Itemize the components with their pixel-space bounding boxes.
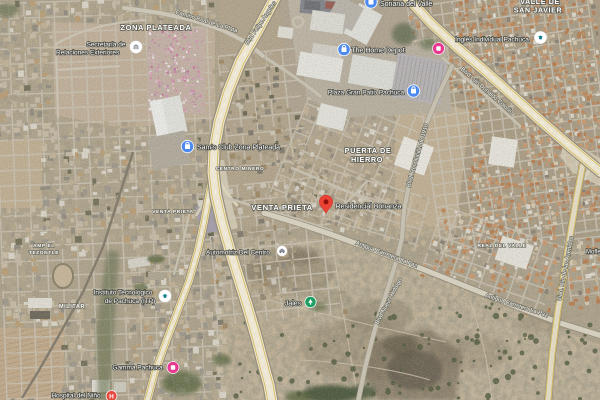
svg-text:VENTA PRIETA: VENTA PRIETA	[251, 203, 312, 212]
svg-text:H: H	[109, 393, 114, 400]
svg-text:Automotriz Del Centro: Automotriz Del Centro	[206, 250, 270, 257]
svg-text:Soriana del Valle: Soriana del Valle	[380, 1, 433, 8]
svg-text:Relaciones Exteriores: Relaciones Exteriores	[56, 50, 120, 57]
svg-text:The Home Depot: The Home Depot	[351, 48, 404, 55]
svg-text:de Pachuca (ITP): de Pachuca (ITP)	[105, 298, 156, 305]
svg-text:TEZONTLE: TEZONTLE	[29, 250, 59, 256]
svg-text:MILITAR: MILITAR	[59, 304, 85, 310]
svg-text:Secretaría de: Secretaría de	[86, 42, 125, 49]
svg-text:Residencial Bonanza: Residencial Bonanza	[336, 204, 402, 211]
svg-text:REAL DEL VALLE: REAL DEL VALLE	[478, 243, 527, 249]
svg-text:Hospital del Niño: Hospital del Niño	[51, 393, 101, 400]
svg-text:PUERTA DE: PUERTA DE	[345, 146, 392, 155]
svg-text:Inglés Individual Pachuca: Inglés Individual Pachuca	[455, 37, 529, 44]
svg-text:VENTA PRIETA: VENTA PRIETA	[152, 209, 194, 215]
svg-text:AMP EL: AMP EL	[33, 243, 55, 249]
svg-text:Mofles: Mofles	[586, 250, 600, 256]
svg-text:ZONA PLATEADA: ZONA PLATEADA	[120, 23, 191, 32]
svg-text:Plaza Gran Patio Pachuca: Plaza Gran Patio Pachuca	[328, 90, 405, 97]
svg-text:Gamma Pachuca: Gamma Pachuca	[112, 365, 163, 372]
svg-text:CENTRO MINERO: CENTRO MINERO	[216, 166, 265, 172]
svg-text:Jales: Jales	[285, 301, 302, 308]
svg-text:Sam's Club Zona Plateada: Sam's Club Zona Plateada	[197, 145, 280, 152]
svg-text:SAN JAVIER: SAN JAVIER	[514, 6, 563, 15]
svg-text:HIERRO: HIERRO	[351, 155, 383, 164]
svg-text:Instituto Tecnológico: Instituto Tecnológico	[94, 290, 153, 297]
